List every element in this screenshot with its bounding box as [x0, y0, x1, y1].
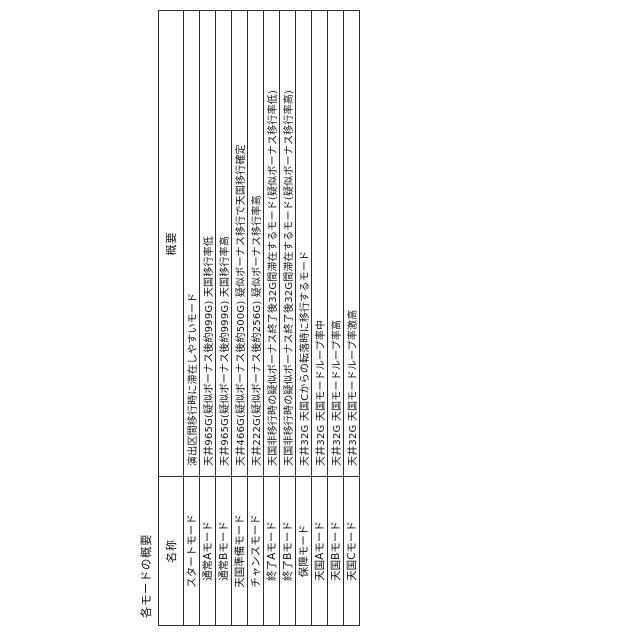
mode-name-cell: 天国Aモード — [312, 477, 328, 626]
mode-overview-cell: 天井965G(疑似ボーナス後約999G) 天国移行率高 — [216, 11, 232, 477]
mode-overview-cell: 天国非移行時の疑似ボーナス終了後32G間滞在するモード(疑似ボーナス移行率低) — [264, 11, 280, 477]
col-header-overview: 概要 — [159, 11, 184, 477]
table-row: スタートモード 演出区間移行時に滞在しやすいモード — [184, 11, 200, 626]
table-row: チャンスモード 天井222G(疑似ボーナス後約256G) 疑似ボーナス移行率高 — [248, 11, 264, 626]
table-title: 各モードの概要 — [137, 11, 158, 626]
mode-overview-cell: 天井32G 天国モードループ率中 — [312, 11, 328, 477]
mode-overview-cell: 天井32G 天国Cからの転落時に移行するモード — [296, 11, 312, 477]
table-row: 天国準備モード 天井466G(疑似ボーナス後約500G) 疑似ボーナス移行で天国… — [232, 11, 248, 626]
rotated-table-block: 各モードの概要 名称 概要 スタートモード 演出区間移行時に滞在しやすいモード … — [137, 11, 346, 626]
table-row: 天国Aモード 天井32G 天国モードループ率中 — [312, 11, 328, 626]
mode-name-cell: 通常Aモード — [200, 477, 216, 626]
mode-name-cell: 保障モード — [296, 477, 312, 626]
mode-overview-cell: 天井965G(疑似ボーナス後約999G) 天国移行率低 — [200, 11, 216, 477]
mode-overview-cell: 天井222G(疑似ボーナス後約256G) 疑似ボーナス移行率高 — [248, 11, 264, 477]
mode-name-cell: 通常Bモード — [216, 477, 232, 626]
mode-name-cell: 天国準備モード — [232, 477, 248, 626]
mode-overview-cell: 天国非移行時の疑似ボーナス終了後32G間滞在するモード(疑似ボーナス移行率高) — [280, 11, 296, 477]
mode-name-cell: 天国Cモード — [344, 477, 360, 626]
scanned-page: 各モードの概要 名称 概要 スタートモード 演出区間移行時に滞在しやすいモード … — [0, 0, 640, 640]
mode-overview-cell: 演出区間移行時に滞在しやすいモード — [184, 11, 200, 477]
mode-overview-cell: 天井32G 天国モードループ率激高 — [344, 11, 360, 477]
col-header-name: 名称 — [159, 477, 184, 626]
table-row: 通常Aモード 天井965G(疑似ボーナス後約999G) 天国移行率低 — [200, 11, 216, 626]
mode-name-cell: 終了Bモード — [280, 477, 296, 626]
table-row: 終了Aモード 天国非移行時の疑似ボーナス終了後32G間滞在するモード(疑似ボーナ… — [264, 11, 280, 626]
mode-overview-cell: 天井466G(疑似ボーナス後約500G) 疑似ボーナス移行で天国移行確定 — [232, 11, 248, 477]
mode-overview-table: 名称 概要 スタートモード 演出区間移行時に滞在しやすいモード 通常Aモード 天… — [158, 10, 360, 626]
table-header-row: 名称 概要 — [159, 11, 184, 626]
table-row: 保障モード 天井32G 天国Cからの転落時に移行するモード — [296, 11, 312, 626]
table-row: 終了Bモード 天国非移行時の疑似ボーナス終了後32G間滞在するモード(疑似ボーナ… — [280, 11, 296, 626]
mode-name-cell: 天国Bモード — [328, 477, 344, 626]
mode-name-cell: 終了Aモード — [264, 477, 280, 626]
mode-name-cell: チャンスモード — [248, 477, 264, 626]
table-row: 天国Cモード 天井32G 天国モードループ率激高 — [344, 11, 360, 626]
table-row: 天国Bモード 天井32G 天国モードループ率高 — [328, 11, 344, 626]
mode-name-cell: スタートモード — [184, 477, 200, 626]
mode-overview-cell: 天井32G 天国モードループ率高 — [328, 11, 344, 477]
table-row: 通常Bモード 天井965G(疑似ボーナス後約999G) 天国移行率高 — [216, 11, 232, 626]
